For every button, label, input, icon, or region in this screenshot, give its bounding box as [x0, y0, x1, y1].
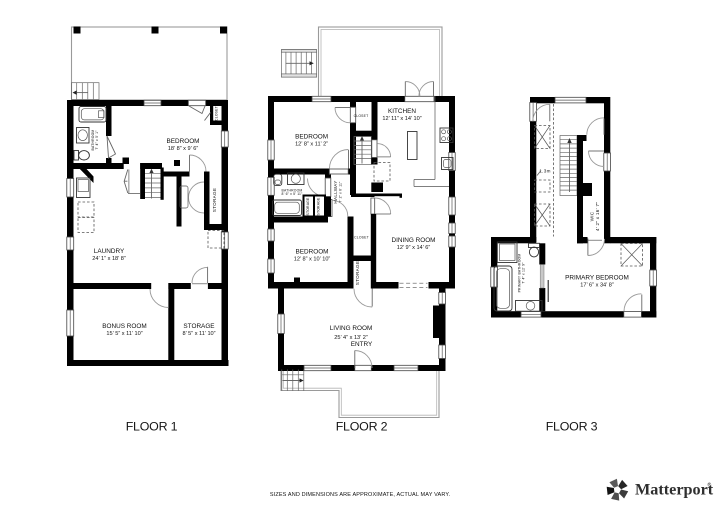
- svg-text:15’ 5” x 11’ 10”: 15’ 5” x 11’ 10”: [106, 331, 142, 337]
- svg-text:BEDROOM: BEDROOM: [295, 248, 328, 255]
- svg-text:17’ 6” x 34’ 8”: 17’ 6” x 34’ 8”: [580, 283, 614, 289]
- svg-text:STORAGE: STORAGE: [183, 323, 214, 330]
- svg-text:SIZES AND DIMENSIONS ARE APPRO: SIZES AND DIMENSIONS ARE APPROXIMATE, AC…: [270, 492, 451, 498]
- svg-text:7’ 4” x 12’ 9”: 7’ 4” x 12’ 9”: [522, 262, 526, 283]
- svg-text:FLOOR 2: FLOOR 2: [336, 420, 388, 434]
- svg-text:8’ 5” x 11’ 10”: 8’ 5” x 11’ 10”: [182, 331, 215, 337]
- svg-text:BEDROOM: BEDROOM: [166, 138, 199, 145]
- svg-text:CLOSET: CLOSET: [354, 114, 369, 118]
- svg-text:HALLWAY: HALLWAY: [333, 180, 338, 203]
- svg-text:STORAGE: STORAGE: [212, 188, 217, 212]
- svg-text:STORAGE: STORAGE: [306, 197, 310, 215]
- svg-text:12’ 8” x 11’ 2”: 12’ 8” x 11’ 2”: [295, 141, 328, 147]
- svg-text:BEDROOM: BEDROOM: [295, 133, 328, 140]
- svg-text:®: ®: [708, 482, 712, 489]
- svg-text:STORAGE: STORAGE: [317, 197, 321, 215]
- svg-text:18’ 8” x 9’ 6”: 18’ 8” x 9’ 6”: [168, 146, 199, 152]
- svg-text:CLOSET: CLOSET: [354, 236, 369, 240]
- svg-text:7’ 4” x 5’ 1”: 7’ 4” x 5’ 1”: [95, 130, 99, 149]
- svg-text:4’ 2” x 16’ 7”: 4’ 2” x 16’ 7”: [595, 202, 600, 231]
- svg-text:12’ 9” x 14’ 6”: 12’ 9” x 14’ 6”: [397, 245, 431, 251]
- svg-text:LAUNDRY: LAUNDRY: [94, 248, 125, 255]
- svg-text:7’ 2” x 6’ 11”: 7’ 2” x 6’ 11”: [339, 182, 343, 203]
- svg-text:KITCHEN: KITCHEN: [388, 108, 416, 115]
- svg-text:12’ 11” x 14’ 10”: 12’ 11” x 14’ 10”: [382, 116, 421, 122]
- svg-text:FLOOR 3: FLOOR 3: [546, 420, 598, 434]
- svg-text:PRIMARY BEDROOM: PRIMARY BEDROOM: [565, 275, 629, 282]
- svg-text:ENTRY: ENTRY: [351, 341, 373, 348]
- svg-text:8’ 6” x 5’ 11”: 8’ 6” x 5’ 11”: [282, 192, 303, 196]
- svg-text:BONUS ROOM: BONUS ROOM: [102, 323, 146, 330]
- svg-text:STORAGE: STORAGE: [355, 261, 360, 285]
- svg-text:Matterport: Matterport: [635, 481, 714, 499]
- svg-text:CLOSET: CLOSET: [215, 106, 219, 121]
- svg-text:12’ 8” x 10’ 10”: 12’ 8” x 10’ 10”: [294, 256, 331, 262]
- svg-text:WIC: WIC: [590, 211, 595, 221]
- svg-text:FLOOR 1: FLOOR 1: [126, 420, 178, 434]
- svg-text:DINING ROOM: DINING ROOM: [391, 237, 435, 244]
- svg-text:24’ 1” x 18’ 8”: 24’ 1” x 18’ 8”: [92, 256, 126, 262]
- svg-text:LIVING ROOM: LIVING ROOM: [330, 325, 373, 332]
